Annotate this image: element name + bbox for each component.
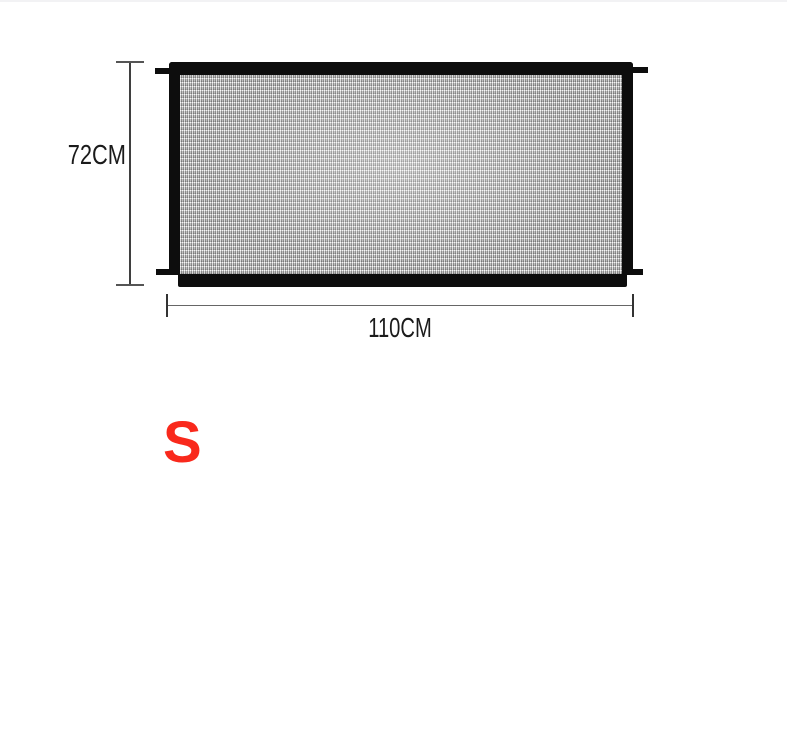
hinge-tab-bottom-left	[156, 269, 172, 275]
width-dimension-label: 110CM	[232, 312, 568, 344]
hinge-tab-top-right	[632, 67, 648, 73]
page-top-edge	[0, 0, 787, 2]
height-dimension-line	[129, 62, 131, 285]
height-dimension-cap-bottom	[116, 284, 144, 286]
hinge-tab-top-left	[155, 68, 171, 74]
height-dimension-label: 72CM	[40, 139, 126, 171]
hinge-tab-bottom-right	[627, 269, 643, 275]
product-dimension-diagram: 72CM 110CM S	[0, 0, 787, 738]
width-dimension-tick-left	[166, 294, 168, 317]
width-dimension-line	[167, 305, 633, 306]
size-badge: S	[163, 414, 202, 472]
width-dimension-tick-right	[632, 294, 634, 317]
gate-frame	[169, 62, 633, 275]
mesh-panel	[180, 75, 622, 275]
height-dimension-cap-top	[116, 61, 144, 63]
gate-bottom-bar	[178, 274, 627, 287]
